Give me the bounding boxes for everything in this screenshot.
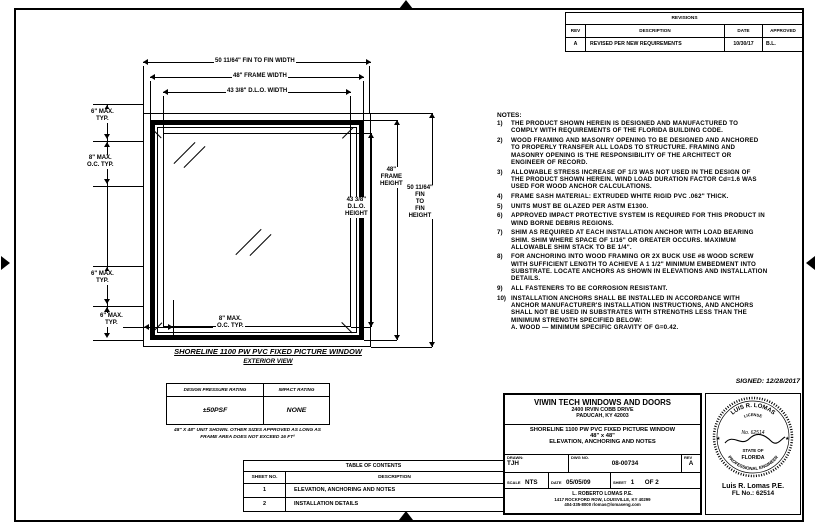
dwg-no-cell: DWG NO. 08-00734 — [569, 455, 682, 472]
toc-description: INSTALLATION DETAILS — [286, 498, 503, 511]
dim-label-edge-bottom: 6" MAX. TYP. — [90, 271, 115, 285]
rating-col-pressure: DESIGN PRESSURE RATING — [167, 384, 264, 396]
note-number: 10) — [497, 295, 511, 331]
rating-table: DESIGN PRESSURE RATING IMPACT RATING ±50… — [166, 383, 330, 425]
note-item: 9)ALL FASTENERS TO BE CORROSION RESISTAN… — [497, 285, 798, 292]
anchor-mark — [165, 121, 168, 124]
revision-approved: B.L. — [763, 38, 803, 51]
toc-row: 1 ELEVATION, ANCHORING AND NOTES — [244, 484, 503, 498]
note-text: FOR ANCHORING INTO WOOD FRAMING OR 2X BU… — [511, 253, 767, 282]
firm-row: L. ROBERTO LOMAS P.E. 1417 ROCKFORD ROW,… — [505, 489, 700, 507]
product-name: SHORELINE 1100 PW PVC FIXED PICTURE WIND… — [505, 425, 700, 433]
dim-label-spacing-bottom: 8" MAX. O.C. TYP. — [216, 316, 245, 330]
toc-table: TABLE OF CONTENTS SHEET NO. DESCRIPTION … — [243, 460, 504, 512]
revision-date: 10/30/17 — [725, 38, 763, 51]
dim-arrow-icon — [144, 324, 149, 330]
note-text: INSTALLATION ANCHORS SHALL BE INSTALLED … — [511, 295, 753, 331]
anchor-mark — [360, 186, 363, 189]
anchor-mark — [151, 266, 154, 269]
scale-value: NTS — [525, 479, 538, 486]
dim-arrow-icon — [143, 59, 148, 65]
anchor-mark — [151, 146, 154, 149]
note-text: ALL FASTENERS TO BE CORROSION RESISTANT. — [511, 285, 668, 292]
revision-rev: A — [566, 38, 586, 51]
note-number: 3) — [497, 169, 511, 191]
notes-title: NOTES: — [497, 112, 798, 119]
extension-line — [371, 113, 432, 114]
note-text: THE PRODUCT SHOWN HEREIN IS DESIGNED AND… — [511, 120, 738, 135]
dim-label-fin-height: 50 11/64" FIN TO FIN HEIGHT — [406, 185, 434, 219]
anchor-mark — [193, 336, 196, 339]
anchor-mark — [333, 336, 336, 339]
title-block: VIWIN TECH WINDOWS AND DOORS 2400 IRVIN … — [503, 393, 702, 515]
dim-arrow-icon — [104, 134, 110, 139]
revisions-col-date: DATE — [725, 25, 763, 37]
extension-line — [150, 81, 151, 120]
note-number: 5) — [497, 203, 511, 210]
anchor-mark — [305, 121, 308, 124]
anchor-mark — [360, 226, 363, 229]
anchor-mark — [249, 336, 252, 339]
extension-line — [163, 96, 164, 133]
note-item: 10)INSTALLATION ANCHORS SHALL BE INSTALL… — [497, 295, 798, 331]
toc-row: 2 INSTALLATION DETAILS — [244, 498, 503, 511]
extension-line — [351, 327, 371, 328]
dim-arrow-icon — [150, 74, 155, 80]
dwg-no-value: 08-00734 — [569, 461, 681, 468]
note-number: 9) — [497, 285, 511, 292]
dim-label-edge-corner: 6" MAX. TYP. — [99, 313, 124, 327]
extension-line — [369, 66, 370, 113]
anchor-mark — [221, 336, 224, 339]
firm-contact: 404-335-8000 rlomas@lomaseng.com — [505, 502, 700, 507]
anchor-mark — [165, 336, 168, 339]
note-text: SHIM AS REQUIRED AT EACH INSTALLATION AN… — [511, 229, 754, 251]
dim-label-frame-width: 48" FRAME WIDTH — [232, 73, 288, 80]
extension-line — [350, 96, 351, 133]
revision-description: REVISED PER NEW REQUIREMENTS — [586, 38, 725, 51]
dim-tick — [93, 340, 143, 341]
dim-line — [432, 113, 433, 347]
note-number: 1) — [497, 120, 511, 135]
elevation-title: SHORELINE 1100 PW PVC FIXED PICTURE WIND… — [143, 347, 393, 356]
toc-sheet-no: 1 — [244, 484, 286, 497]
note-item: 7)SHIM AS REQUIRED AT EACH INSTALLATION … — [497, 229, 798, 251]
toc-title: TABLE OF CONTENTS — [244, 461, 503, 472]
dim-tick — [143, 308, 144, 338]
extension-line — [143, 66, 144, 113]
anchor-mark — [249, 121, 252, 124]
dim-arrow-icon — [104, 333, 110, 338]
extension-line — [364, 120, 397, 121]
sheet-of: OF 2 — [639, 479, 659, 486]
rating-pressure-value: ±50PSF — [167, 397, 264, 424]
dim-tick — [93, 266, 143, 267]
dim-arrow-icon — [104, 142, 110, 147]
note-number: 6) — [497, 212, 511, 227]
note-item: 4)FRAME SASH MATERIAL: EXTRUDED WHITE RI… — [497, 193, 798, 200]
seal-star-icon: ★ — [785, 436, 790, 442]
dim-arrow-icon — [359, 74, 364, 80]
note-number: 7) — [497, 229, 511, 251]
dim-line — [397, 120, 398, 340]
company-address2: PADUCAH, KY 42003 — [505, 413, 700, 419]
engineer-fl-no: FL No.: 62514 — [706, 490, 800, 497]
svg-text:LICENSE: LICENSE — [743, 412, 763, 419]
note-number: 4) — [497, 193, 511, 200]
dim-line — [371, 133, 372, 327]
scale-label: SCALE — [505, 479, 521, 485]
anchor-mark — [151, 226, 154, 229]
registration-mark-left-icon — [1, 256, 10, 270]
toc-sheet-no: 2 — [244, 498, 286, 511]
sheet-cell: SHEET 1 OF 2 — [611, 473, 700, 488]
rating-footnote: 48" X 48" UNIT SHOWN. OTHER SIZES APPROV… — [140, 428, 355, 442]
note-item: 6)APPROVED IMPACT PROTECTIVE SYSTEM IS R… — [497, 212, 798, 227]
product-sheet-title: ELEVATION, ANCHORING AND NOTES — [505, 439, 700, 445]
title-block-product-row: SHORELINE 1100 PW PVC FIXED PICTURE WIND… — [505, 425, 700, 455]
window-glazing-dlo — [163, 133, 351, 327]
registration-mark-top-icon — [399, 0, 413, 9]
dim-tick — [93, 104, 143, 105]
signed-date: SIGNED: 12/28/2017 — [683, 378, 800, 385]
rating-col-impact: IMPACT RATING — [264, 384, 329, 396]
date-value: 05/05/09 — [566, 479, 591, 486]
seal-license-arc: LICENSE — [743, 412, 763, 419]
title-block-company-row: VIWIN TECH WINDOWS AND DOORS 2400 IRVIN … — [505, 395, 700, 425]
note-text: WOOD FRAMING AND MASONRY OPENING TO BE D… — [511, 137, 758, 166]
extension-line — [363, 81, 364, 120]
seal-florida: FLORIDA — [741, 455, 764, 461]
extension-line — [364, 340, 397, 341]
dim-label-edge-top: 6" MAX. TYP. — [90, 109, 115, 123]
scale-cell: SCALE NTS — [505, 473, 549, 488]
toc-col-desc: DESCRIPTION — [286, 472, 503, 483]
anchor-mark — [277, 336, 280, 339]
note-item: 2)WOOD FRAMING AND MASONRY OPENING TO BE… — [497, 137, 798, 166]
anchor-mark — [360, 146, 363, 149]
seal-state: STATE OF — [742, 448, 763, 453]
registration-mark-right-icon — [806, 256, 815, 270]
rating-impact-value: NONE — [264, 397, 329, 424]
dim-tick — [93, 141, 143, 142]
drawing-sheet: REVISIONS REV DESCRIPTION DATE APPROVED … — [0, 0, 816, 528]
dim-arrow-icon — [366, 59, 371, 65]
extension-line — [351, 133, 371, 134]
date-cell: DATE 05/05/09 — [549, 473, 611, 488]
dim-arrow-icon — [168, 324, 173, 330]
revisions-col-rev: REV — [566, 25, 586, 37]
dim-tick — [173, 300, 174, 337]
date-label: DATE — [549, 479, 562, 485]
engineer-seal-icon: LUIS R. LOMAS LICENSE No. 62514 STATE OF… — [707, 395, 799, 479]
anchor-mark — [151, 306, 154, 309]
dim-label-dlo-width: 43 3/8" D.L.O. WIDTH — [226, 88, 288, 95]
registration-mark-bottom-icon — [399, 511, 413, 520]
toc-col-sheet: SHEET NO. — [244, 472, 286, 483]
anchor-mark — [193, 121, 196, 124]
dim-label-frame-height: 48" FRAME HEIGHT — [379, 167, 404, 188]
seal-star-icon: ★ — [716, 436, 721, 442]
dim-tick — [93, 186, 143, 187]
sheet-label: SHEET — [611, 479, 626, 485]
anchor-mark — [333, 121, 336, 124]
dim-tick — [93, 306, 143, 307]
dim-label-dlo-height: 43 3/8" D.L.O. HEIGHT — [344, 197, 369, 218]
notes-section: NOTES: 1)THE PRODUCT SHOWN HEREIN IS DES… — [497, 112, 798, 334]
note-item: 8)FOR ANCHORING INTO WOOD FRAMING OR 2X … — [497, 253, 798, 282]
drawn-value: TJH — [505, 461, 568, 468]
anchor-mark — [151, 186, 154, 189]
anchor-mark — [305, 336, 308, 339]
revisions-col-description: DESCRIPTION — [586, 25, 725, 37]
revisions-col-approved: APPROVED — [763, 25, 803, 37]
revisions-table: REVISIONS REV DESCRIPTION DATE APPROVED … — [565, 12, 804, 52]
dim-label-fin-width: 50 11/64" FIN TO FIN WIDTH — [214, 58, 296, 65]
anchor-mark — [360, 266, 363, 269]
note-number: 2) — [497, 137, 511, 166]
revisions-title: REVISIONS — [566, 13, 803, 25]
elevation-subtitle: EXTERIOR VIEW — [143, 358, 393, 365]
anchor-mark — [360, 306, 363, 309]
note-text: FRAME SASH MATERIAL: EXTRUDED WHITE RIGI… — [511, 193, 729, 200]
note-text: APPROVED IMPACT PROTECTIVE SYSTEM IS REQ… — [511, 212, 765, 227]
note-item: 1)THE PRODUCT SHOWN HEREIN IS DESIGNED A… — [497, 120, 798, 135]
note-item: 5)UNITS MUST BE GLAZED PER ASTM E1300. — [497, 203, 798, 210]
note-number: 8) — [497, 253, 511, 282]
company-name: VIWIN TECH WINDOWS AND DOORS — [505, 395, 700, 407]
dim-arrow-icon — [104, 179, 110, 184]
dim-arrow-icon — [346, 89, 351, 95]
dim-label-spacing-side: 8" MAX. O.C. TYP. — [86, 155, 115, 169]
note-item: 3)ALLOWABLE STRESS INCREASE OF 1/3 WAS N… — [497, 169, 798, 191]
note-text: ALLOWABLE STRESS INCREASE OF 1/3 WAS NOT… — [511, 169, 757, 191]
drawn-cell: DRAWN: TJH — [505, 455, 569, 472]
revision-row: A REVISED PER NEW REQUIREMENTS 10/30/17 … — [566, 38, 803, 51]
anchor-mark — [277, 121, 280, 124]
dim-arrow-icon — [104, 299, 110, 304]
toc-description: ELEVATION, ANCHORING AND NOTES — [286, 484, 503, 497]
rev-cell: REV A — [682, 455, 700, 472]
engineer-name: Luis R. Lomas P.E. — [706, 483, 800, 490]
sheet-number: 1 — [631, 479, 635, 486]
note-text: UNITS MUST BE GLAZED PER ASTM E1300. — [511, 203, 648, 210]
anchor-mark — [221, 121, 224, 124]
seal-box: LUIS R. LOMAS LICENSE No. 62514 STATE OF… — [705, 393, 801, 515]
dim-arrow-icon — [104, 307, 110, 312]
dim-arrow-icon — [163, 89, 168, 95]
rev-value: A — [682, 461, 700, 468]
